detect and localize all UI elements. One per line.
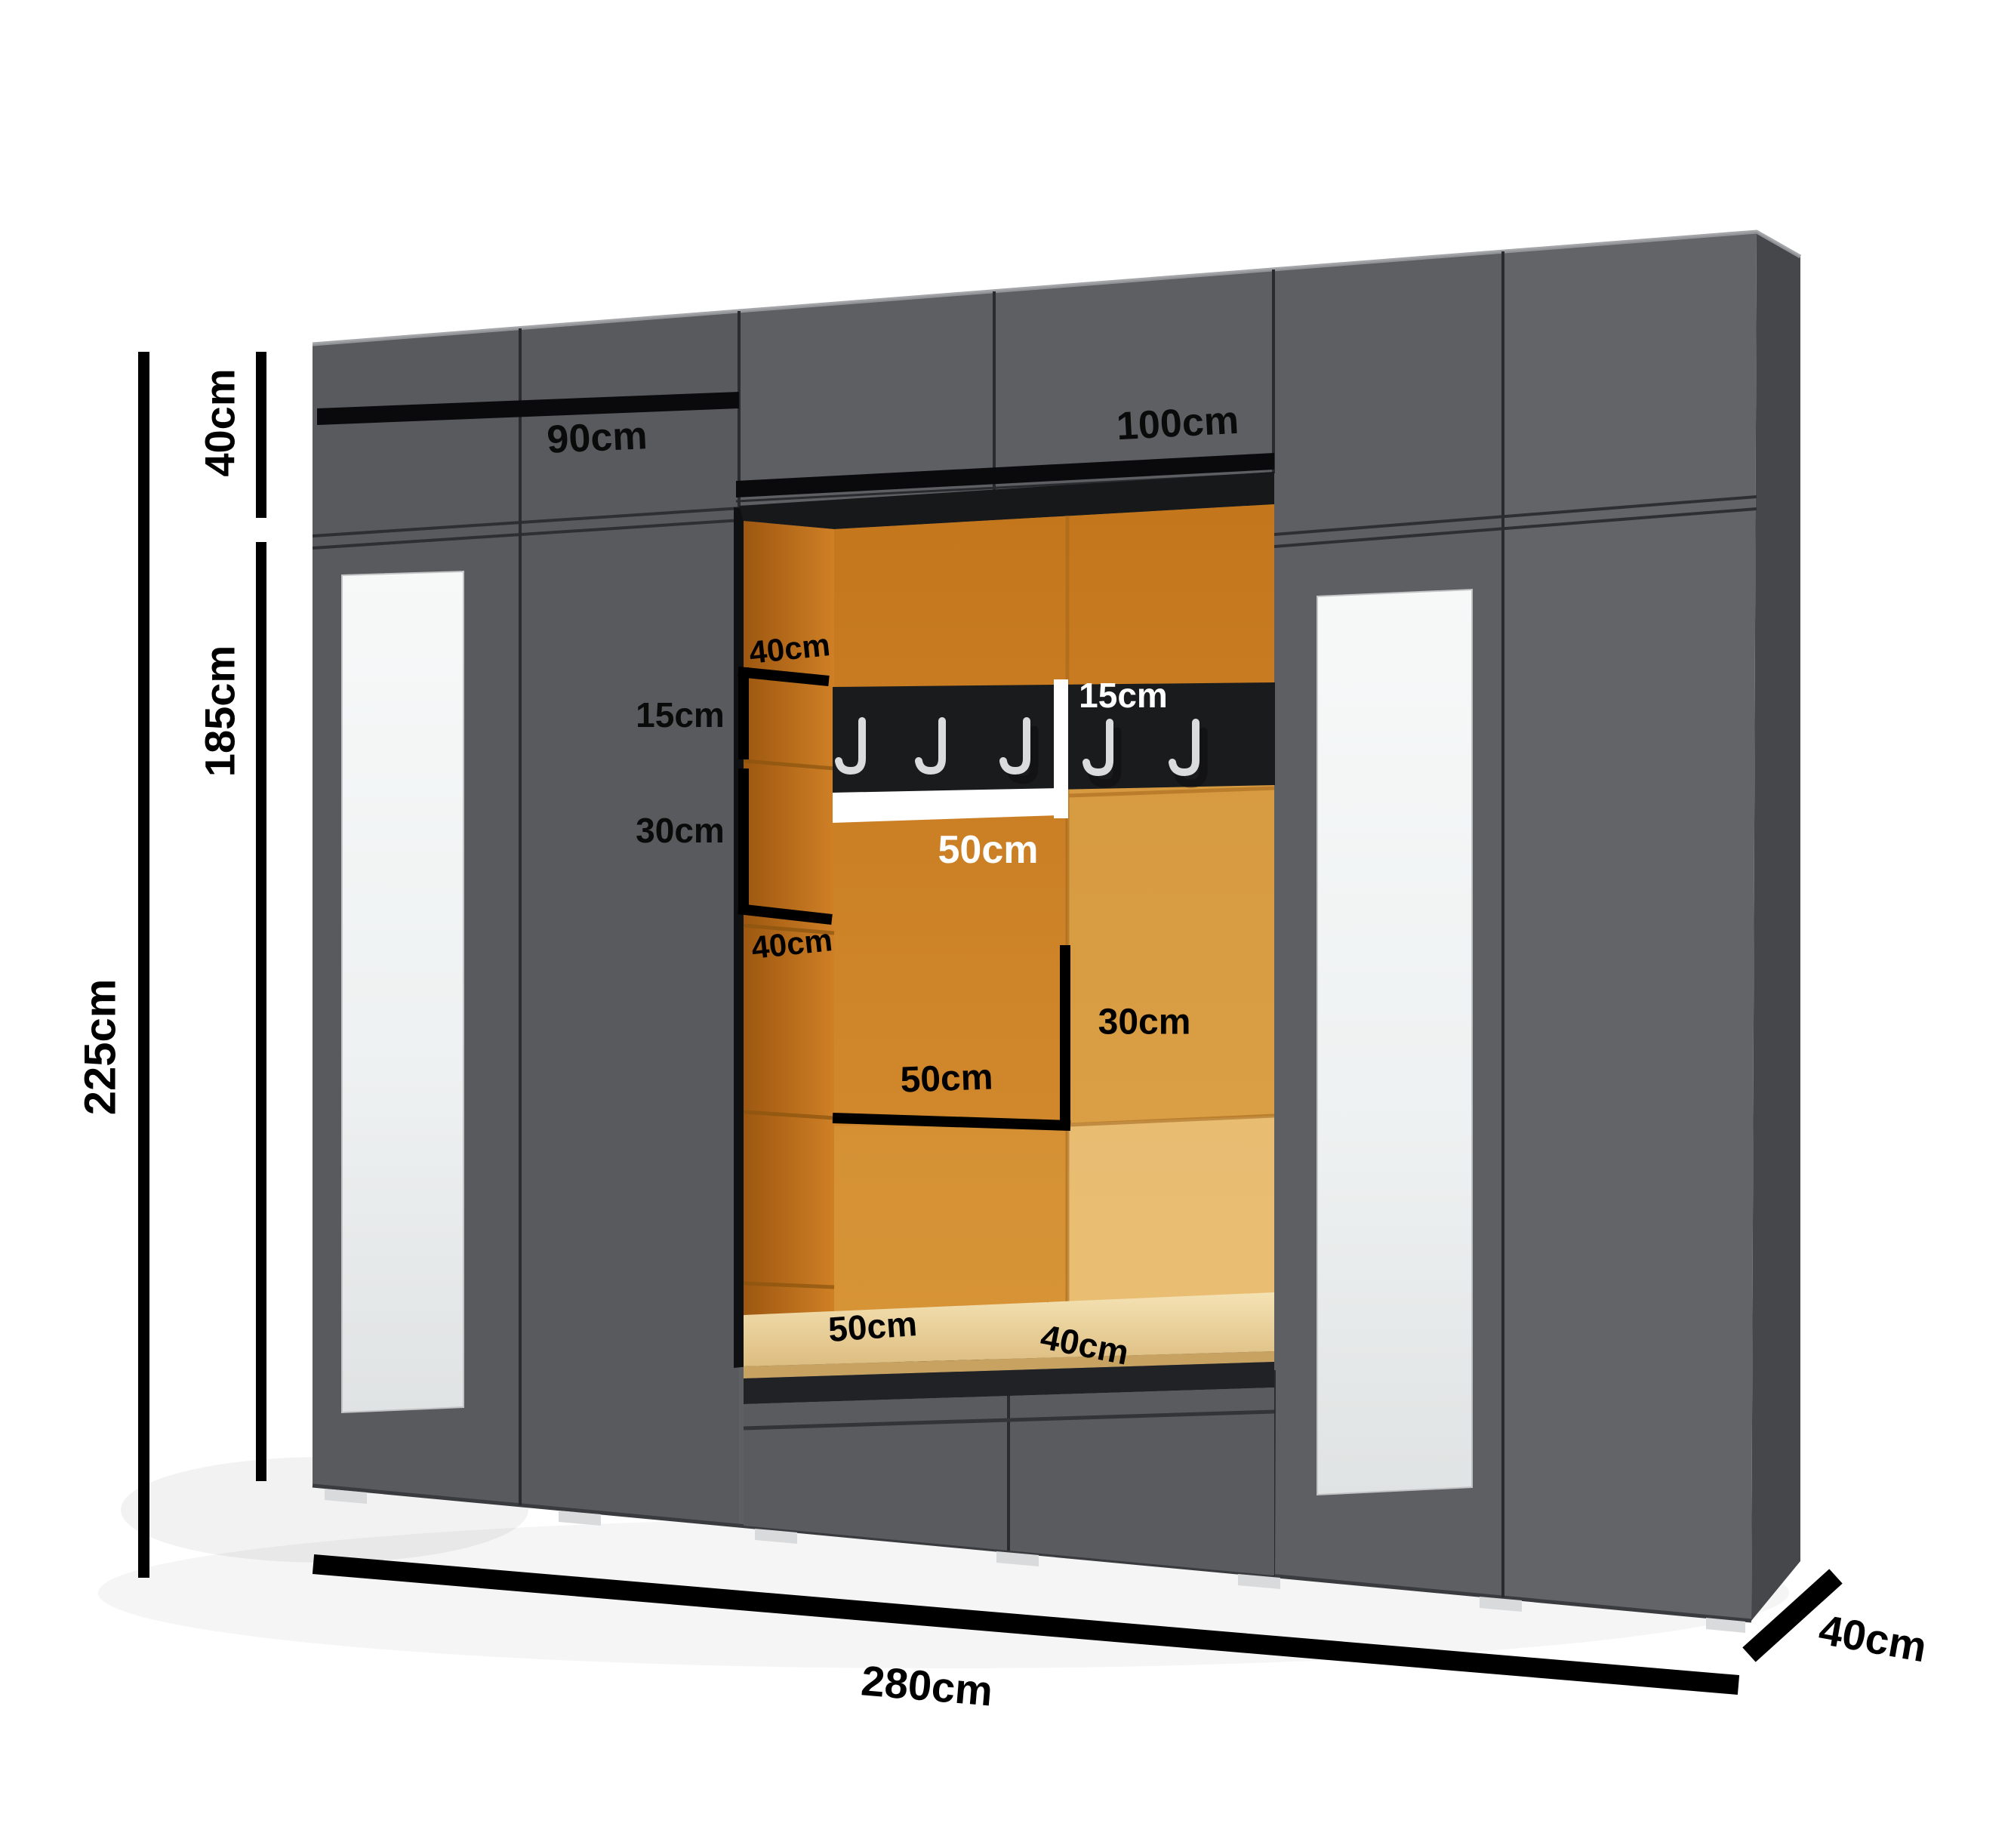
bracket-shelf-horizontal: [833, 1118, 1070, 1126]
rail-height-bracket: [1054, 679, 1068, 818]
wardrobe-illustration: 225cm 40cm 185cm 90cm 100cm 40cm 15cm 30…: [0, 0, 2011, 1848]
mirror-right: [1317, 590, 1472, 1495]
dimline-body-height: [256, 542, 266, 1481]
label-top-cabinet-height: 40cm: [196, 368, 244, 476]
cabinet-side-panel: [1751, 232, 1800, 1621]
label-bench-width: 50cm: [827, 1304, 919, 1349]
niche-panel-light-mid: [1067, 784, 1274, 1123]
label-rail-offset-left: 15cm: [636, 695, 725, 735]
label-total-height: 225cm: [76, 979, 125, 1116]
dimline-top-height: [256, 352, 266, 518]
label-rail-section-width: 50cm: [938, 828, 1039, 872]
label-depth: 40cm: [1815, 1606, 1930, 1671]
dimension-diagram: 225cm 40cm 185cm 90cm 100cm 40cm 15cm 30…: [0, 0, 2011, 1848]
label-center-section-width: 100cm: [1116, 399, 1240, 448]
label-body-height: 185cm: [196, 645, 244, 777]
label-panel-gap-left: 30cm: [636, 811, 725, 850]
mirror-left: [342, 571, 463, 1412]
label-shelf-height: 30cm: [1098, 1003, 1191, 1043]
cabinet-right-block-shade: [1503, 232, 1757, 1621]
label-left-section-width: 90cm: [546, 414, 648, 462]
dimline-total-height: [138, 352, 149, 1578]
label-shelf-width: 50cm: [900, 1057, 994, 1100]
label-rail-height: 15cm: [1079, 676, 1168, 715]
label-total-width: 280cm: [859, 1656, 994, 1714]
